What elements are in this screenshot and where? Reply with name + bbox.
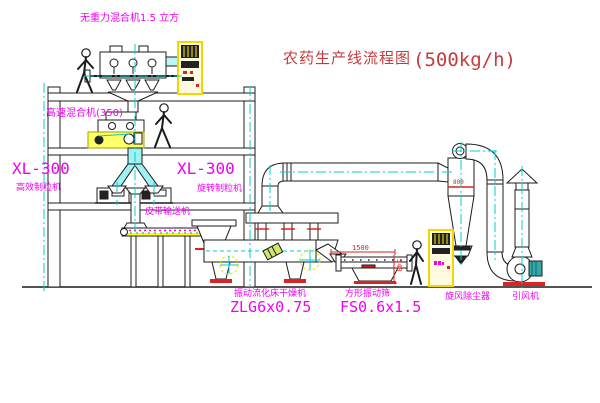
label-granulator-right-model: XL-300 [177,161,235,177]
label-screen-model: FS0.6x1.5 [340,300,421,315]
label-dryer-model: ZLG6x0.75 [230,300,311,315]
title-capacity: (500kg/h) [413,49,516,71]
label-belt-conveyor: 皮带输送机 [145,208,190,217]
control-cabinet-2 [429,230,453,286]
dim-screen-height: 540 [395,259,403,272]
label-cyclone: 旋风除尘器 [445,293,490,302]
control-cabinet-1 [178,42,202,94]
fluid-bed-dryer [192,213,346,283]
drawing-title: 农药生产线流程图 (500kg/h) [283,47,516,71]
label-fan: 引风机 [512,293,539,302]
title-chinese: 农药生产线流程图 [283,47,411,68]
dim-cyclone: 800 [453,179,464,186]
belt-conveyor [121,228,208,287]
label-granulator-left-model: XL-300 [12,161,70,177]
worker-1 [77,49,93,92]
label-granulator-right-name: 旋转制粒机 [197,185,242,194]
worker-2 [155,104,171,147]
cad-flowsheet-canvas: 农药生产线流程图 (500kg/h) 无重力混合机1.5 立方 高速混合机(35… [0,0,600,403]
exhaust-duct [258,163,448,213]
induced-draft-fan [503,256,545,286]
label-gravity-mixer: 无重力混合机1.5 立方 [80,14,179,24]
label-granulator-left-name: 高效制粒机 [16,184,61,193]
dim-screen-length: 1500 [352,244,369,252]
label-high-speed-mixer: 高速混合机(350) [46,109,123,119]
